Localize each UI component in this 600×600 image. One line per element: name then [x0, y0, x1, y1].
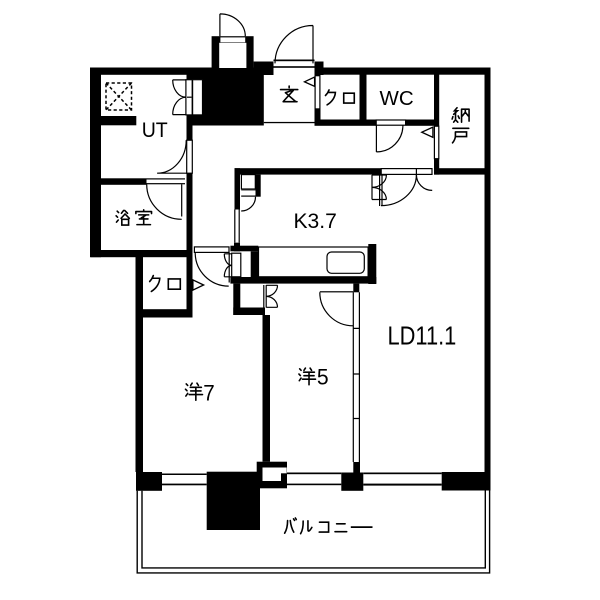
svg-text:5: 5 [317, 364, 329, 390]
svg-text:7: 7 [203, 381, 214, 406]
svg-text:WC: WC [380, 87, 414, 110]
svg-text:LD11.1: LD11.1 [388, 323, 457, 351]
svg-text:K3.7: K3.7 [294, 209, 337, 233]
svg-text:UT: UT [142, 120, 168, 143]
